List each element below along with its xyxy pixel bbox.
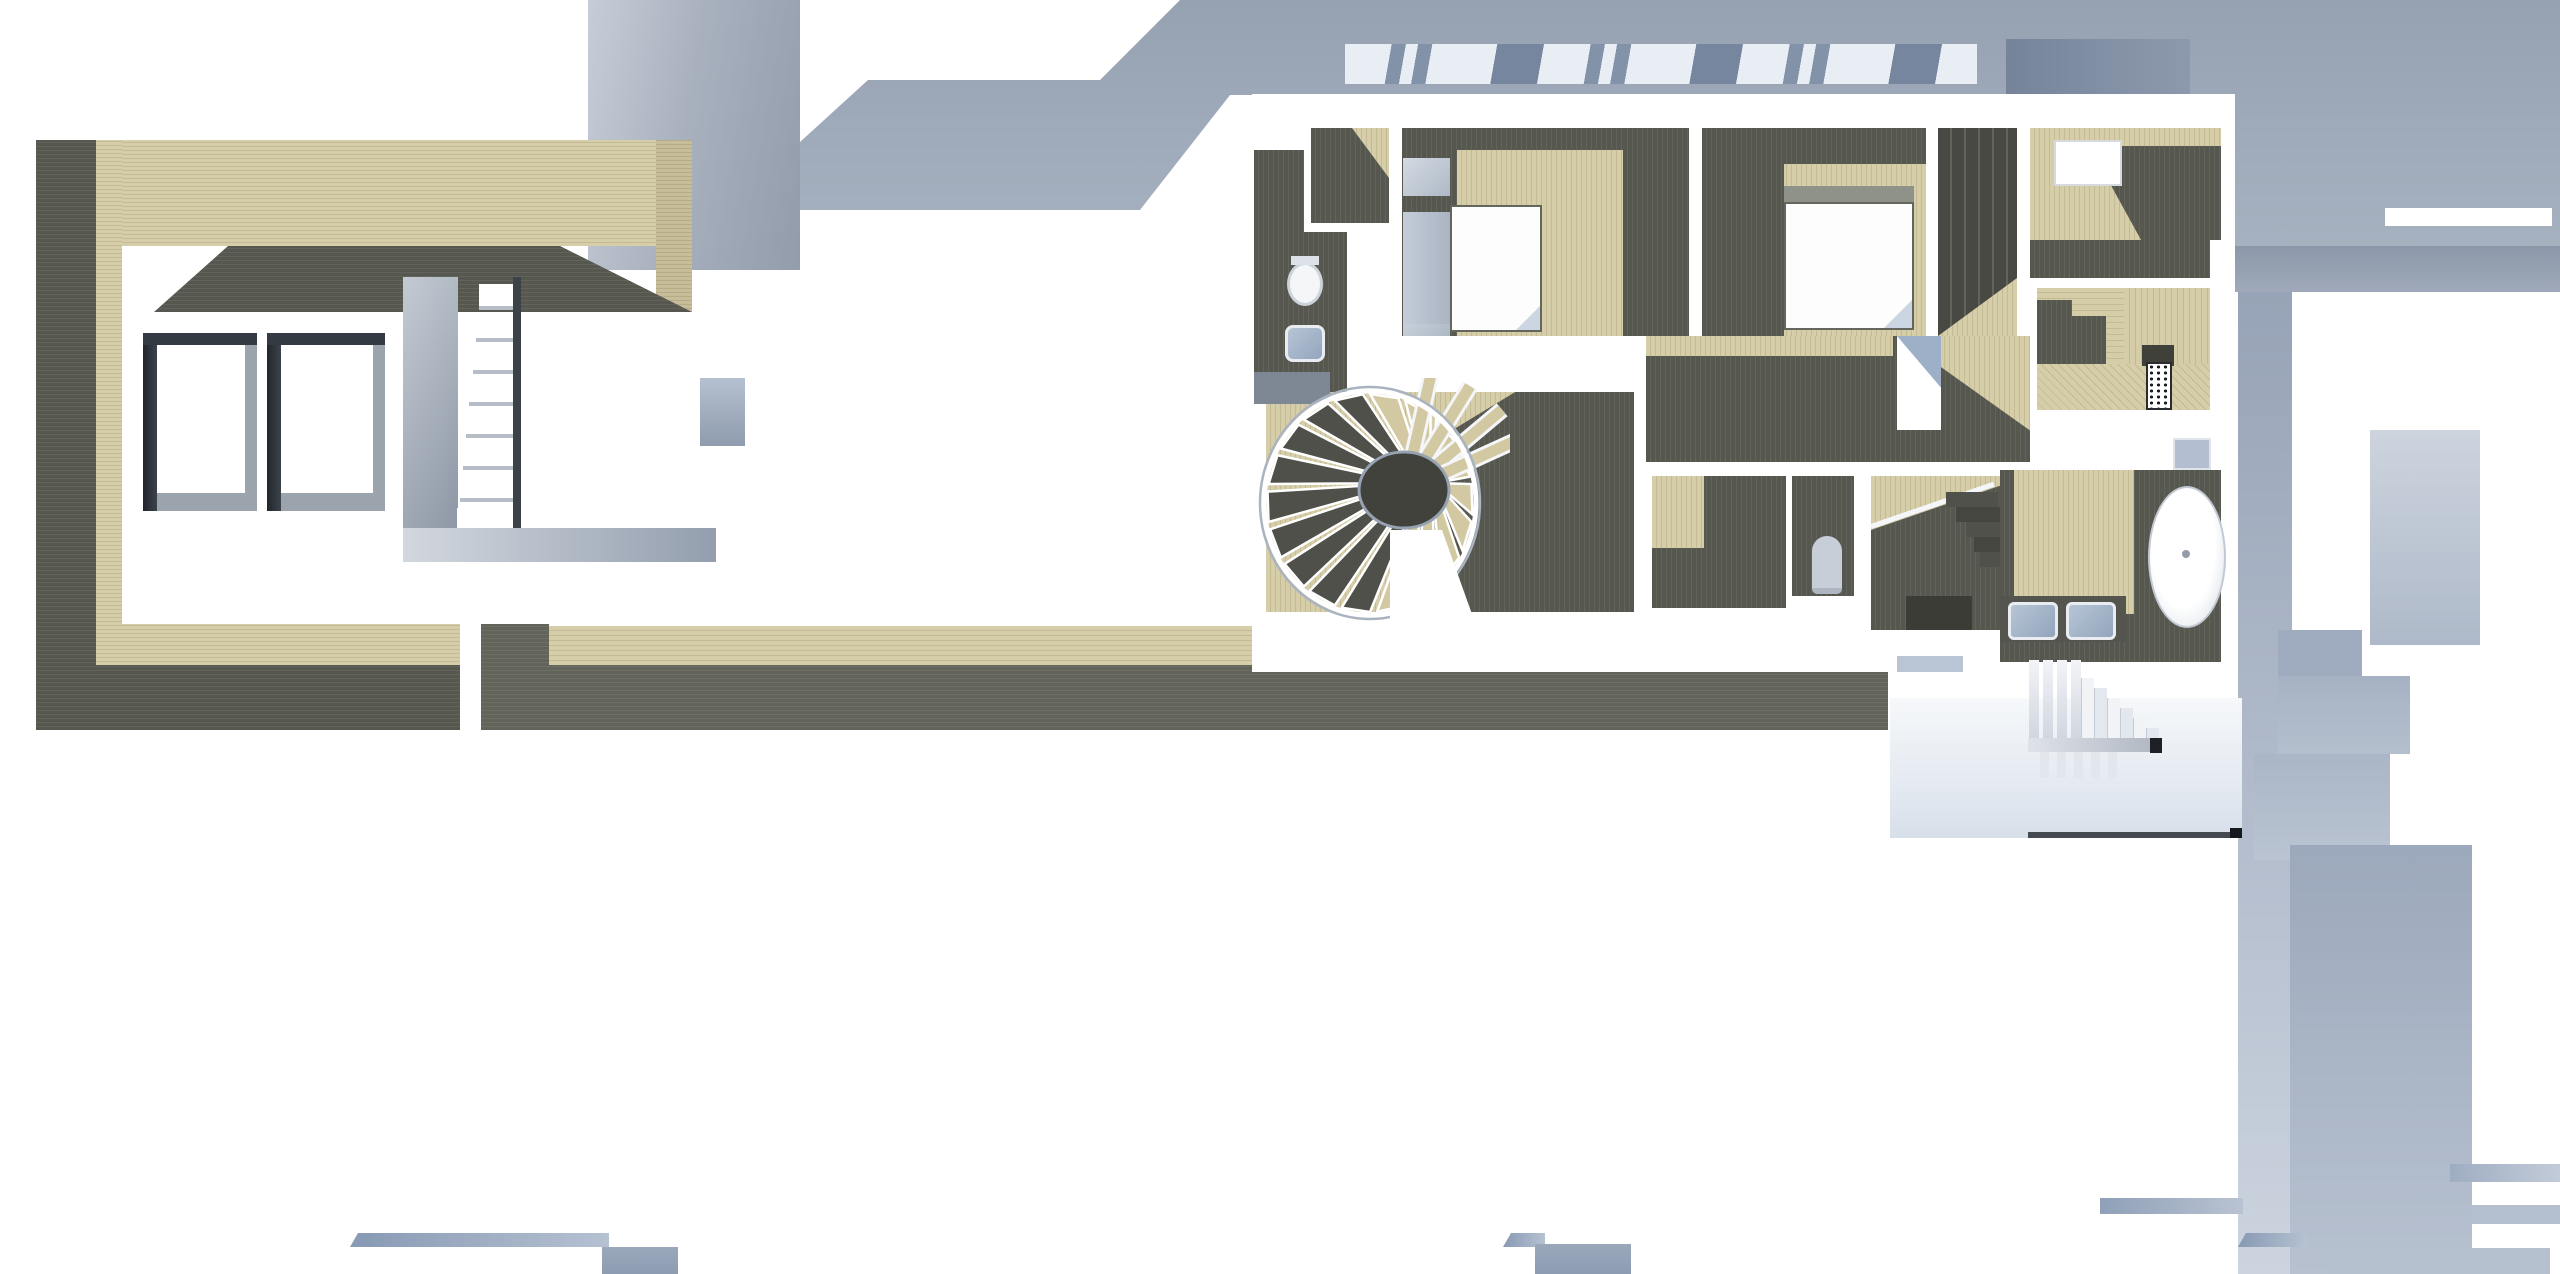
central-hall-strip: [1646, 336, 1893, 356]
garage-step: [473, 348, 517, 370]
garage-step: [479, 284, 517, 306]
ext-stair-baluster: [2040, 752, 2049, 778]
right-roof-mass-b: [2278, 630, 2362, 676]
dressing-notch: [2037, 316, 2106, 364]
toilet-tank: [1291, 256, 1319, 265]
skylight-window-1: [143, 333, 257, 511]
garage-step-shadow: [473, 370, 517, 374]
ext-stair-stringer: [2028, 738, 2162, 752]
floorplan-render: [0, 0, 2560, 1274]
glazed-opening-glass: [1897, 336, 1941, 430]
wash-basin: [1285, 325, 1325, 362]
right-roof-bar-2: [2472, 1205, 2560, 1224]
bedroom-2-dark-top: [1702, 128, 1926, 164]
ext-stair-baluster: [2057, 752, 2066, 778]
ext-stair-baluster: [2108, 752, 2117, 778]
ext-stair-riser: [2029, 660, 2039, 740]
skylight-window-2: [267, 333, 385, 511]
window-1-pane: [157, 345, 245, 493]
utility-room: [2030, 240, 2210, 278]
canopy-tab-1: [350, 1233, 609, 1247]
garage-stair-landing: [403, 528, 716, 562]
stairwell-step: [1956, 507, 2000, 522]
left-roof-bar: [2100, 1198, 2243, 1214]
garage-inner-tan-column: [96, 140, 122, 665]
spiral-staircase-svg: [1250, 378, 1510, 628]
ext-stair-baluster: [2074, 752, 2083, 778]
dressing-step: [2037, 300, 2072, 316]
garage-step: [476, 316, 517, 338]
study-room-sun: [1652, 476, 1704, 548]
garage-west-wall: [36, 140, 96, 730]
canopy-tab-3: [2238, 1233, 2307, 1247]
stairwell-landing: [1906, 596, 1972, 630]
ext-stair-cap: [2150, 738, 2162, 753]
garage-step-shadow: [460, 498, 517, 502]
master-bathroom-floor: [2014, 470, 2134, 614]
bed-1-pillows: [1403, 212, 1450, 324]
garage-stair-stringer: [403, 277, 458, 545]
garage-step: [457, 508, 517, 530]
roof-vent-slit: [2385, 208, 2552, 226]
bathtub-drain: [2182, 550, 2190, 558]
window-2-frame-top: [267, 333, 385, 345]
stairwell-step: [1946, 492, 1998, 507]
toilet-2: [1812, 536, 1842, 594]
ext-stair-riser: [2057, 660, 2067, 740]
central-hall-wall: [1646, 462, 2030, 476]
garage-deck-edge: [656, 140, 692, 312]
garage-shadow-bottom: [36, 665, 460, 730]
spiral-staircase: [1250, 378, 1510, 628]
garage-step-shadow: [469, 402, 517, 406]
garage-deck-top: [122, 140, 692, 246]
patterned-rug: [2146, 362, 2172, 410]
canopy-block-2: [1535, 1244, 1631, 1274]
vanity-sink-2: [2066, 602, 2116, 640]
rooflight-cutout: [2054, 140, 2122, 186]
right-roof-mass-c: [2278, 676, 2410, 754]
garage-step: [463, 444, 517, 466]
vanity-sink-1: [2008, 602, 2058, 640]
window-2-frame-left: [267, 333, 281, 511]
garage-step-shadow: [463, 466, 517, 470]
terrace-edge-cap: [2230, 828, 2242, 838]
bedroom-1-dark-right: [1623, 128, 1689, 336]
stairwell-step: [1966, 522, 2002, 537]
headboard: [1784, 186, 1914, 202]
garage-step-shadow: [479, 306, 517, 310]
walkway-corner-block: [481, 624, 549, 730]
right-roof-bar-1: [2450, 1164, 2560, 1182]
right-roof-dark-strip: [2235, 246, 2560, 292]
right-roof-column: [2290, 845, 2472, 1274]
right-roof-bottom-strip: [2330, 1248, 2550, 1274]
garage-step: [469, 380, 517, 402]
toilet: [1287, 262, 1323, 306]
garage-stair-rail: [513, 277, 521, 545]
garage-step-shadow: [466, 434, 517, 438]
window-1-frame-top: [143, 333, 257, 345]
glazed-opening: [1897, 336, 1941, 430]
window-2-pane: [281, 345, 373, 493]
bed-1: [1450, 205, 1542, 332]
nightstand-1: [1403, 158, 1450, 196]
terrace-edge: [2028, 832, 2242, 838]
utility-wall: [2030, 278, 2210, 288]
ext-stair-riser: [2071, 660, 2081, 740]
skylight-hatch-band: [1345, 44, 1977, 84]
garage-step: [460, 476, 517, 498]
bed-2: [1784, 202, 1914, 330]
window-1-frame-left: [143, 333, 157, 511]
glass-rail-sliver: [700, 378, 745, 446]
garage-step-shadow: [476, 338, 517, 342]
walkway-shadow-strip: [549, 665, 1888, 730]
robe-room: [2037, 364, 2210, 410]
hall-slit: [1689, 128, 1702, 336]
canopy-block-1: [602, 1247, 678, 1274]
garage-deck-bottom: [122, 624, 460, 665]
shower-tray: [2173, 438, 2211, 470]
ext-stair-baluster: [2091, 752, 2100, 778]
ext-stair-riser: [2043, 660, 2053, 740]
terrace-sliver: [1897, 656, 1963, 672]
garage-step: [466, 412, 517, 434]
right-roof-mass-a: [2370, 430, 2480, 645]
